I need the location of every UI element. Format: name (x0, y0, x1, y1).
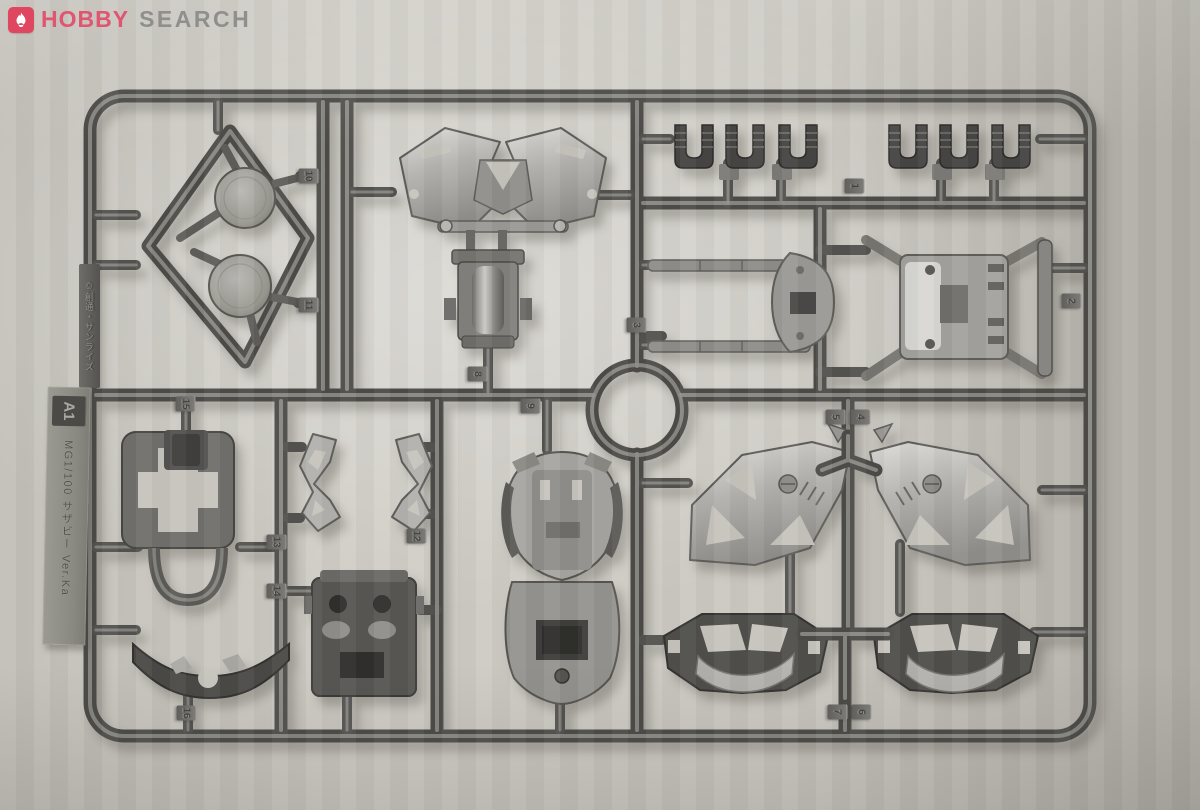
hobby-search-watermark: HOBBY SEARCH (8, 6, 251, 33)
gate-tag-12: 12 (407, 529, 427, 544)
gate-tag-1: 1 (845, 179, 865, 194)
gate-tag-9: 9 (521, 399, 541, 414)
gate-tag-6: 6 (852, 705, 872, 720)
gate-tag-8: 8 (468, 367, 488, 382)
gate-tag-13: 13 (267, 535, 287, 550)
gate-tag-7: 7 (828, 705, 848, 720)
knee-armor-part-7 (664, 614, 828, 693)
gate-tag-14: 14 (267, 584, 287, 599)
runner-label-plate: A1 MG1/100 サザビー Ver.Ka (42, 387, 90, 646)
gate-tag-16: 16 (177, 706, 197, 721)
gate-tag-11: 11 (299, 298, 319, 313)
brand-primary: HOBBY (41, 6, 129, 33)
thruster-row-part-1 (675, 125, 1030, 180)
photo-stage: HOBBY SEARCH (0, 0, 1200, 810)
flame-icon (8, 7, 34, 33)
runner-code-emblem: A1 (51, 396, 86, 427)
gate-tag-3: 3 (627, 318, 647, 333)
knee-armor-part-6 (874, 614, 1038, 693)
gate-tag-2: 2 (1062, 294, 1082, 309)
brand-secondary: SEARCH (139, 6, 251, 33)
waist-part-14 (304, 570, 424, 696)
kit-label: MG1/100 サザビー Ver.Ka (57, 440, 76, 597)
wing-frame-part-5 (690, 424, 850, 565)
copyright-text: ©創通・サンライズ (83, 281, 96, 372)
wing-frame-part-4 (870, 424, 1030, 565)
backpack-frame-part-2 (866, 240, 1052, 376)
gate-tag-4: 4 (851, 410, 871, 425)
gate-tag-10: 10 (299, 169, 319, 184)
chest-frame-part (400, 128, 606, 232)
leg-frame-part-9 (501, 452, 623, 704)
gate-tag-15: 15 (176, 397, 196, 412)
gate-tag-5: 5 (826, 410, 846, 425)
disc-carrier-frame (148, 131, 308, 362)
crescent-part-16 (133, 644, 289, 698)
runner-code: A1 (60, 401, 77, 421)
rail-part-3 (648, 253, 834, 352)
cylinder-part-8 (444, 230, 532, 348)
torso-frame-part-15 (122, 430, 234, 600)
copyright-tab: ©創通・サンライズ (79, 264, 100, 388)
flame-glyph (12, 11, 30, 29)
